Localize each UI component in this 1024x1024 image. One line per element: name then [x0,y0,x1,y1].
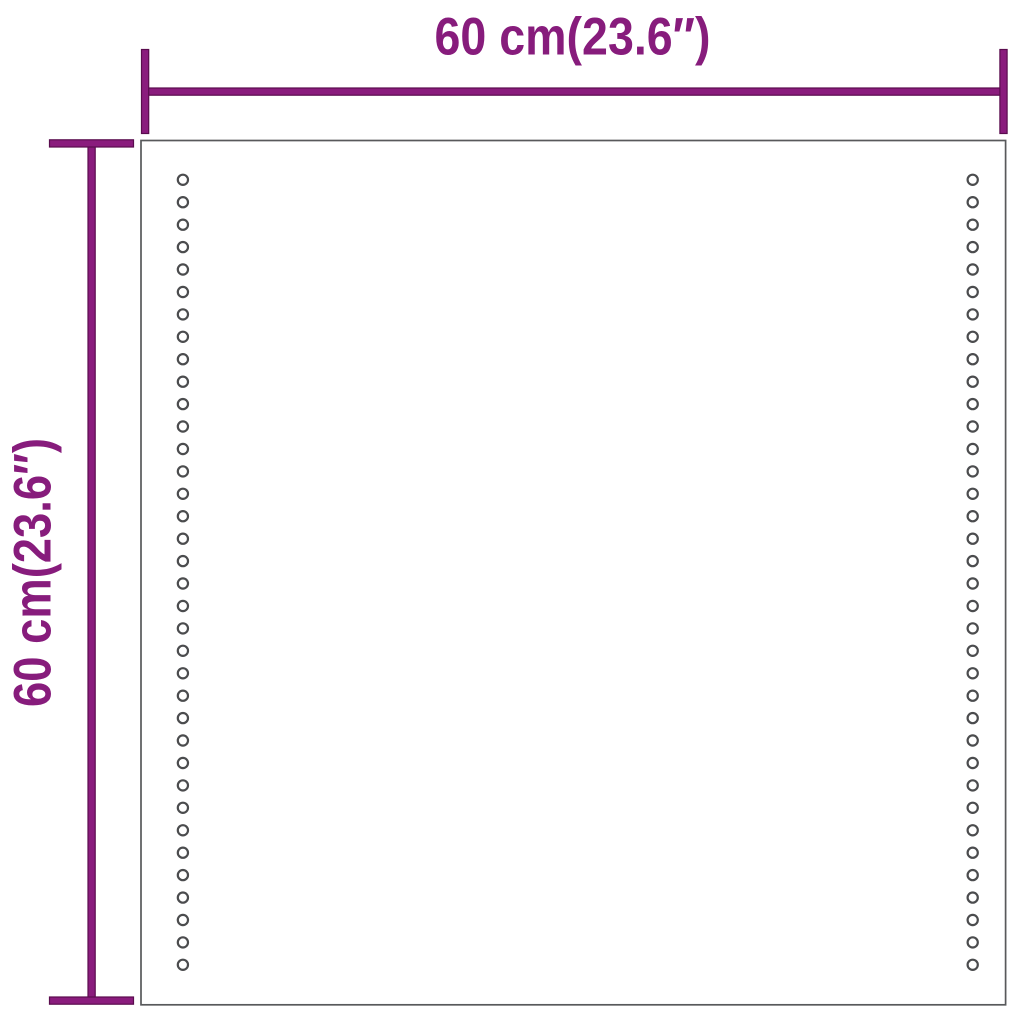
svg-text:60 cm(23.6″): 60 cm(23.6″) [435,8,711,67]
svg-text:60 cm(23.6″): 60 cm(23.6″) [4,438,63,707]
